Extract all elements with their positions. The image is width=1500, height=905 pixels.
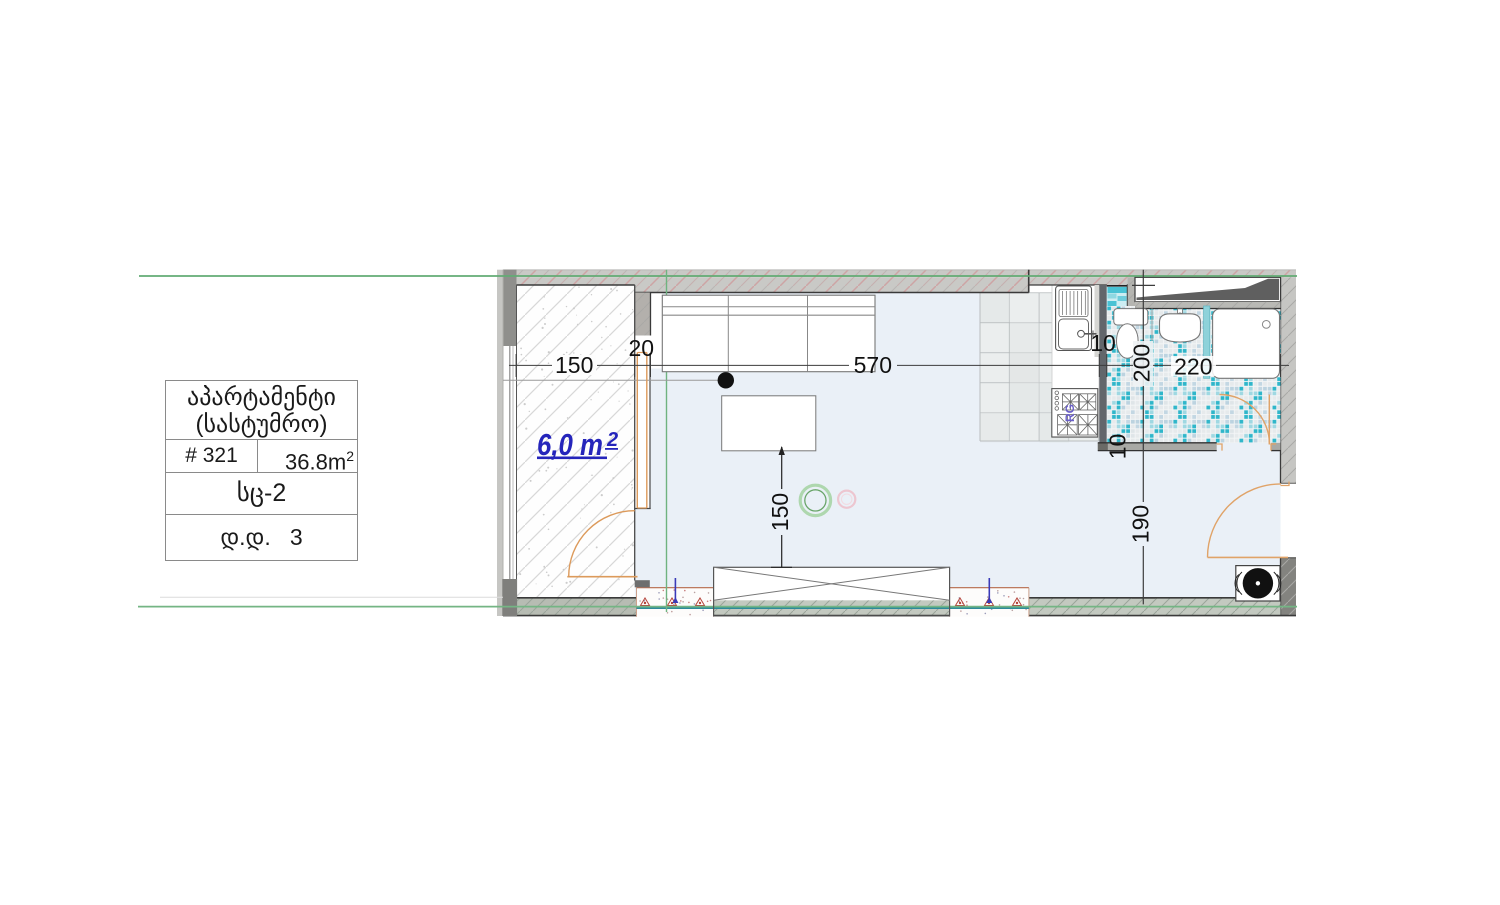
svg-text:200: 200: [1128, 344, 1154, 382]
svg-text:10: 10: [1090, 330, 1116, 356]
svg-text:RG: RG: [1063, 404, 1077, 422]
svg-text:10: 10: [1105, 434, 1131, 460]
svg-text:570: 570: [854, 352, 892, 378]
svg-text:2: 2: [606, 429, 618, 451]
svg-text:150: 150: [555, 352, 593, 378]
svg-text:150: 150: [767, 493, 793, 531]
svg-text:220: 220: [1174, 354, 1212, 380]
svg-text:190: 190: [1128, 505, 1154, 543]
svg-text:20: 20: [629, 335, 655, 361]
